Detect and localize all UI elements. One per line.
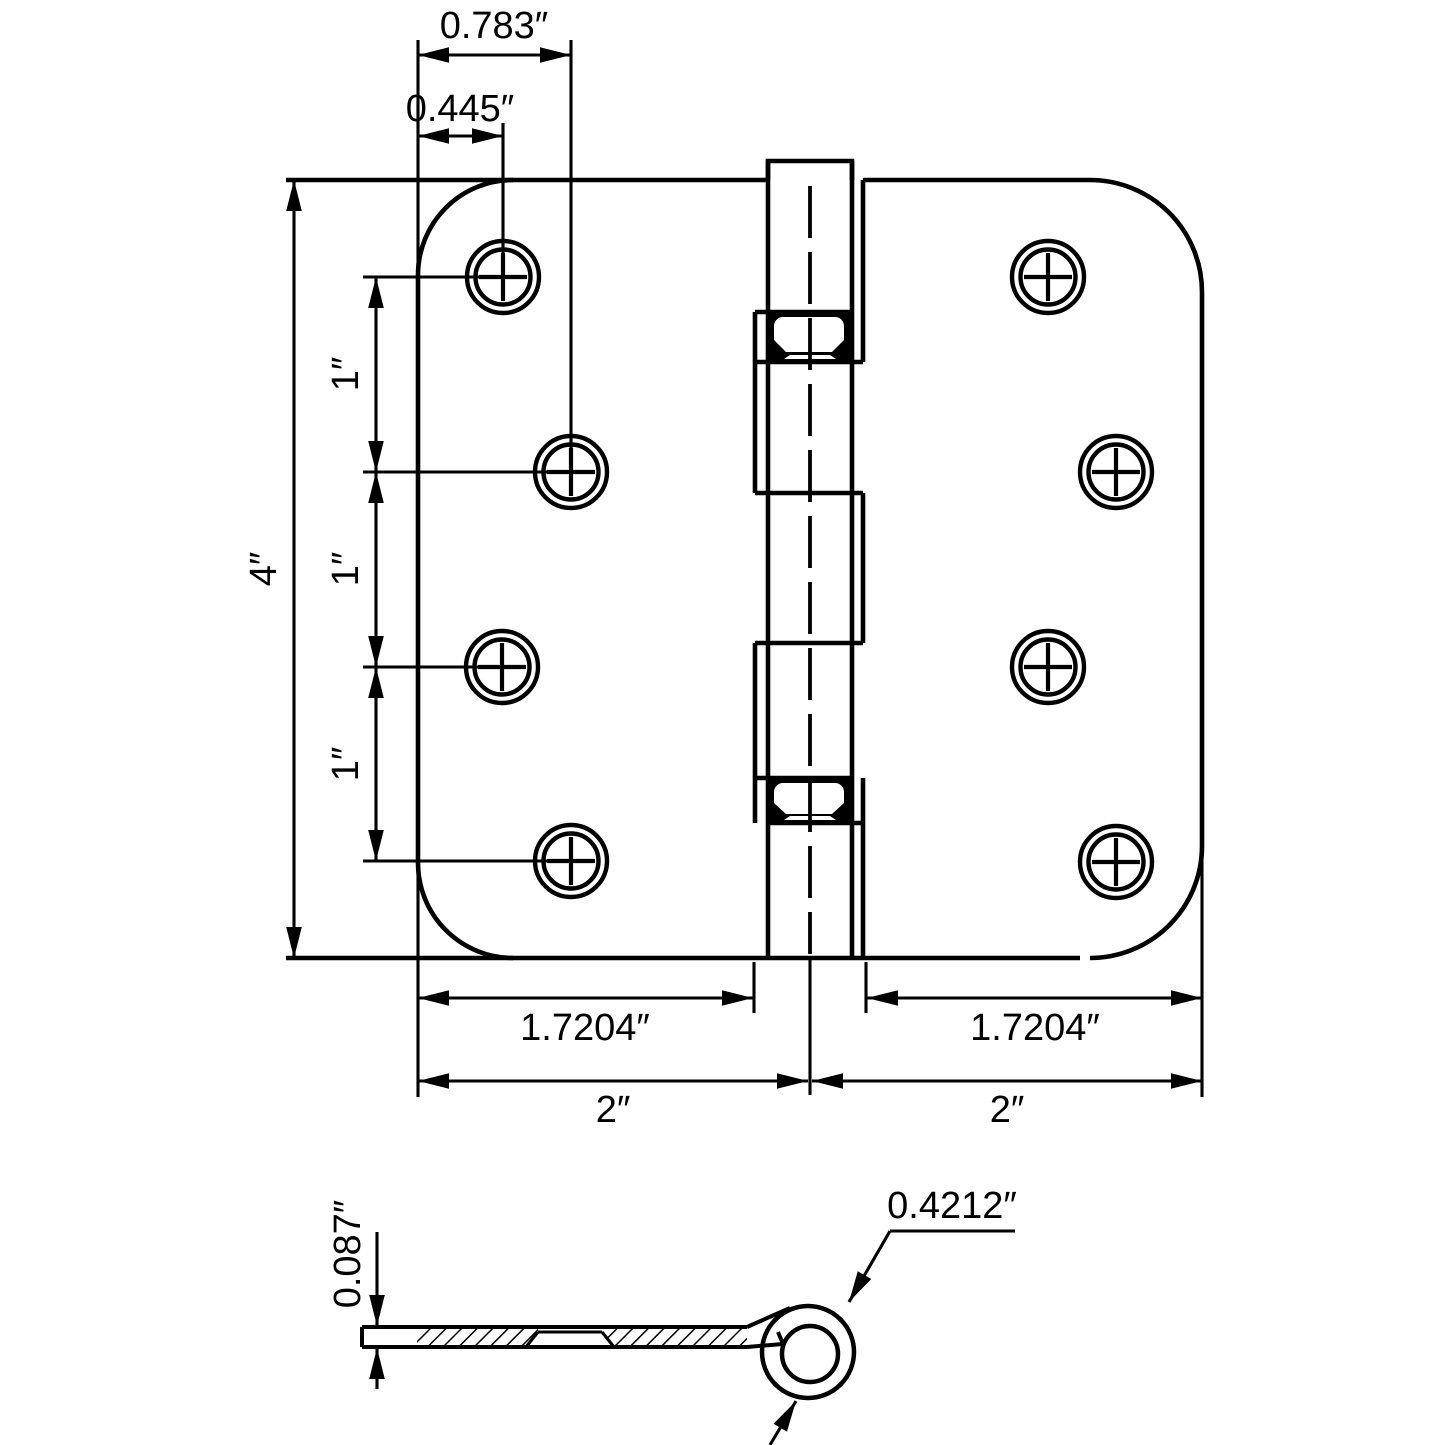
leader-arrow-bottom (770, 1401, 796, 1445)
hinge-barrel (755, 161, 863, 958)
leader-arrow (849, 1231, 890, 1302)
extension-lines (363, 40, 1202, 1097)
corner-arc-top-left (418, 180, 513, 275)
corner-arc-top-right (1090, 180, 1202, 292)
dim-label-hole-pitch-3: 1″ (325, 747, 367, 782)
corner-arc-bottom-left (418, 863, 513, 958)
barrel-top-cap (768, 161, 852, 180)
dim-label-flat-width-right: 1.7204″ (970, 1007, 1100, 1049)
dim-label-hole-inset-inner: 0.445″ (406, 88, 515, 130)
dim-label-hole-pitch-1: 1″ (325, 357, 367, 392)
countersink-hole-section (526, 1332, 614, 1347)
screw-hole (1080, 436, 1152, 508)
hinge-technical-drawing: 0.783″ 0.445″ 4″ 1″ 1″ 1″ 1.7204″ 1.7204… (0, 0, 1445, 1445)
leaf-section-hatch-right (602, 1327, 747, 1347)
dim-label-hole-pitch-2: 1″ (325, 552, 367, 587)
dim-label-leaf-height: 4″ (243, 552, 285, 587)
dim-label-hole-inset-outer: 0.783″ (440, 5, 549, 47)
screw-hole (1012, 631, 1084, 703)
dim-label-leaf-width-right: 2″ (990, 1089, 1025, 1131)
dimensions-front: 0.783″ 0.445″ 4″ 1″ 1″ 1″ 1.7204″ 1.7204… (243, 5, 1202, 1131)
drawing-canvas: 0.783″ 0.445″ 4″ 1″ 1″ 1″ 1.7204″ 1.7204… (0, 0, 1445, 1445)
dim-label-knuckle-diameter: 0.4212″ (887, 1185, 1017, 1227)
dimension-knuckle-diameter: 0.4212″ (849, 1185, 1017, 1302)
leaf-section-hatch-left (417, 1327, 538, 1347)
curl-pin-hole (782, 1326, 838, 1382)
dim-label-thickness: 0.087″ (327, 1200, 369, 1309)
knuckle-curl-section (747, 1306, 854, 1398)
dim-label-leaf-width-left: 2″ (596, 1089, 631, 1131)
screw-hole (1080, 826, 1152, 898)
dimension-thickness: 0.087″ (327, 1200, 377, 1389)
dim-label-flat-width-left: 1.7204″ (520, 1007, 650, 1049)
screw-hole (1012, 241, 1084, 313)
front-view: 0.783″ 0.445″ 4″ 1″ 1″ 1″ 1.7204″ 1.7204… (243, 5, 1202, 1131)
side-view: 0.087″ 0.4212″ (327, 1185, 1017, 1445)
